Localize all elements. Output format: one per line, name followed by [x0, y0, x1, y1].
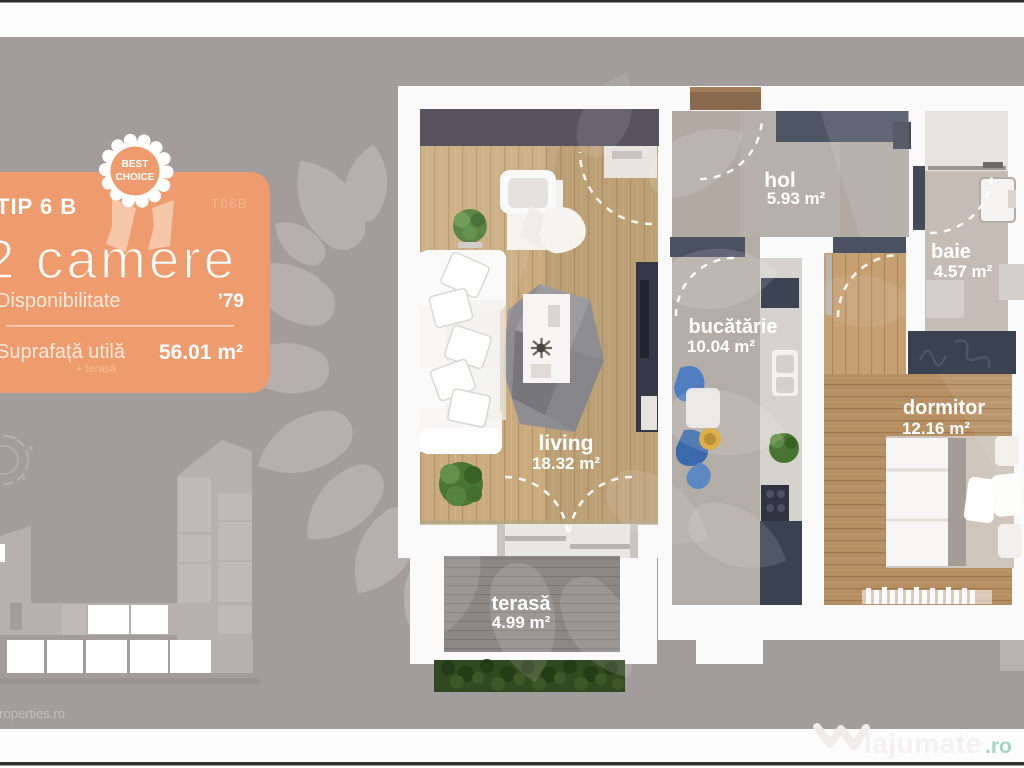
svg-text:terasă: terasă	[492, 593, 552, 615]
svg-text:lajumate: lajumate	[864, 728, 982, 759]
svg-text:BEST: BEST	[122, 159, 149, 170]
svg-text:+ terasă: + terasă	[76, 363, 117, 375]
svg-text:bucătărie: bucătărie	[689, 316, 778, 338]
svg-text:properties.ro: properties.ro	[0, 706, 65, 721]
svg-text:56.01 m²: 56.01 m²	[159, 341, 243, 364]
svg-text:10.04 m²: 10.04 m²	[687, 337, 755, 356]
svg-text:CHOICE: CHOICE	[116, 172, 155, 183]
svg-text:T06B: T06B	[211, 196, 248, 211]
svg-text:4.99 m²: 4.99 m²	[492, 613, 551, 632]
svg-text:dormitor: dormitor	[903, 397, 985, 419]
svg-text:18.32 m²: 18.32 m²	[532, 454, 600, 473]
svg-text:12.16 m²: 12.16 m²	[902, 419, 970, 438]
svg-text:’79: ’79	[218, 291, 244, 312]
svg-text:Suprafață utilă: Suprafață utilă	[0, 341, 126, 363]
svg-text:.ro: .ro	[985, 735, 1012, 758]
svg-text:Disponibilitate: Disponibilitate	[0, 290, 121, 312]
svg-text:living: living	[539, 432, 594, 455]
svg-text:5.93 m²: 5.93 m²	[767, 189, 826, 208]
svg-text:4.57 m²: 4.57 m²	[934, 262, 993, 281]
svg-text:TIP 6 B: TIP 6 B	[0, 194, 77, 219]
svg-text:baie: baie	[931, 241, 971, 263]
